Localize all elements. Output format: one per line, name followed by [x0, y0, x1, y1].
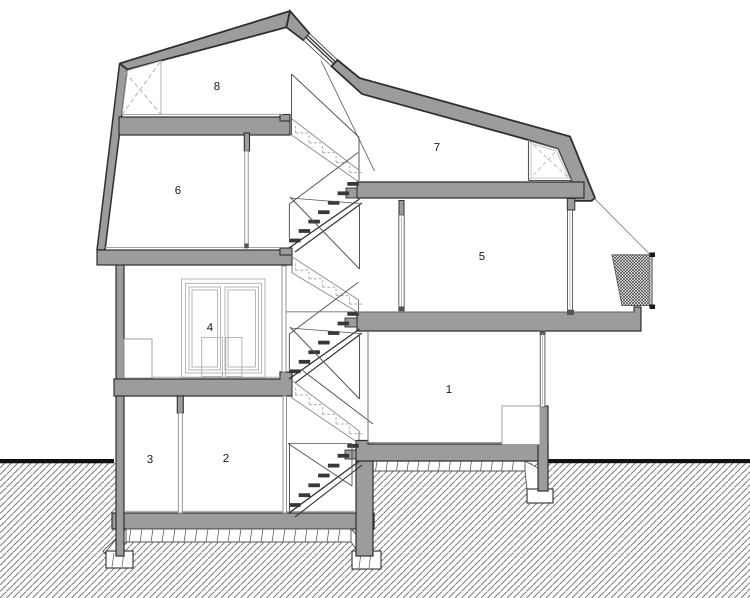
svg-text:6: 6 [175, 185, 181, 197]
svg-text:7: 7 [434, 142, 440, 154]
svg-text:4: 4 [207, 322, 214, 334]
svg-text:2: 2 [223, 453, 229, 465]
svg-text:1: 1 [446, 384, 452, 396]
svg-text:3: 3 [147, 454, 153, 466]
svg-text:8: 8 [214, 81, 220, 93]
svg-text:5: 5 [479, 251, 485, 263]
